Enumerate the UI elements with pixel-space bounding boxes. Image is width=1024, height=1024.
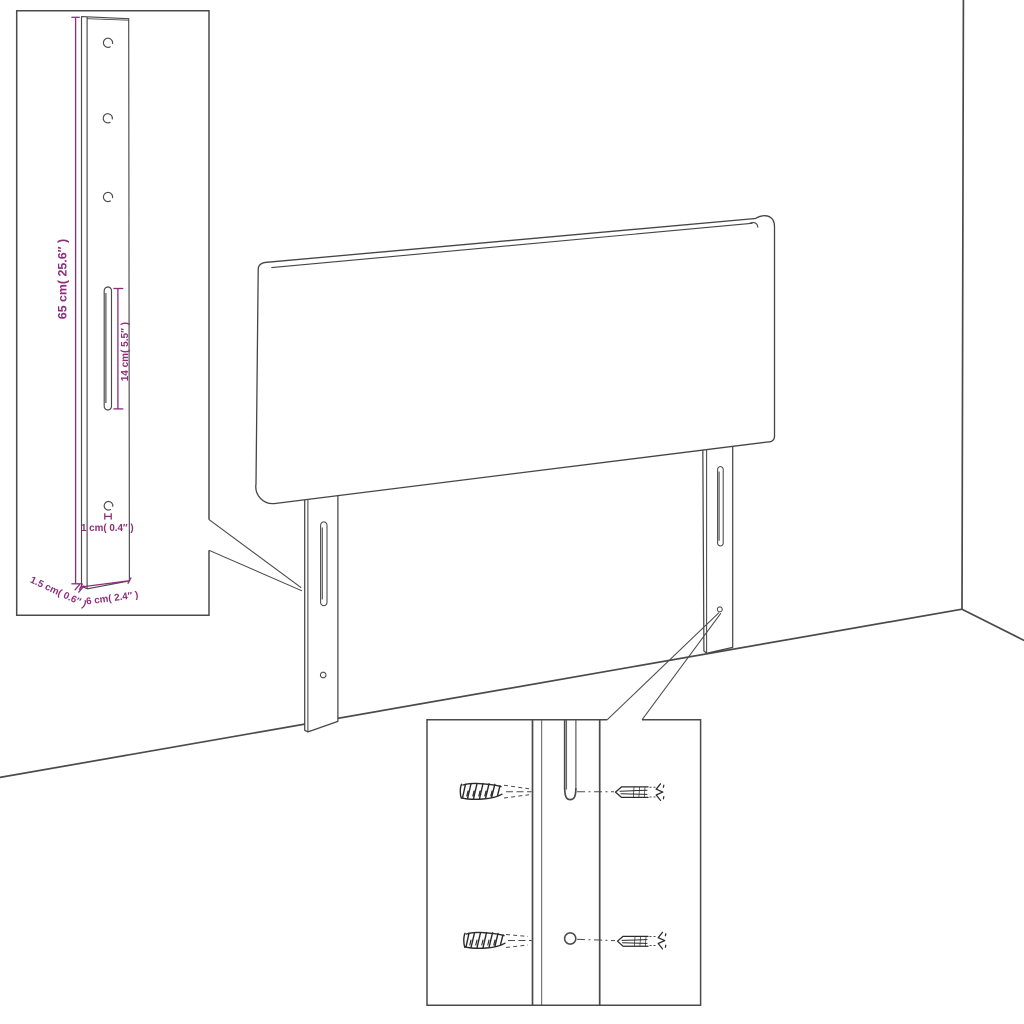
svg-text:65 cm( 25.6″ ): 65 cm( 25.6″ ): [55, 239, 69, 319]
svg-text:1 cm( 0.4″ ): 1 cm( 0.4″ ): [81, 523, 134, 534]
svg-text:14 cm( 5.5″ ): 14 cm( 5.5″ ): [120, 322, 131, 381]
